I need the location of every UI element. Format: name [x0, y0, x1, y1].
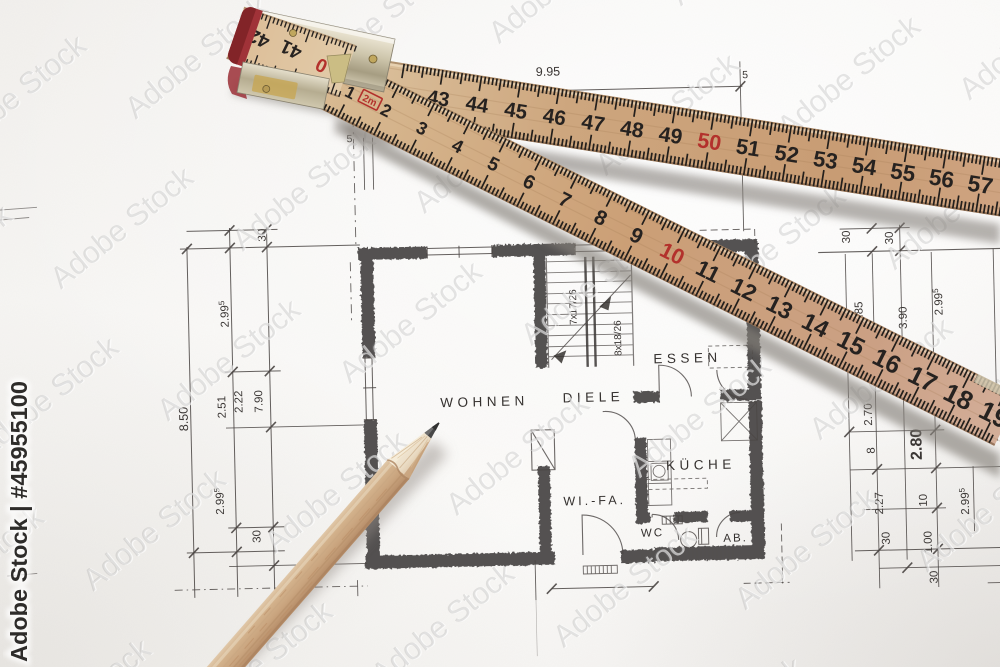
svg-text:57: 57 [966, 170, 995, 200]
svg-text:Adobe Stock | #45955100: Adobe Stock | #45955100 [6, 381, 32, 662]
svg-text:52: 52 [773, 139, 801, 168]
svg-text:KÜCHE: KÜCHE [666, 457, 736, 474]
svg-text:9.95: 9.95 [536, 64, 561, 79]
svg-text:48: 48 [618, 117, 645, 143]
svg-text:30: 30 [881, 532, 893, 545]
svg-text:ESSEN: ESSEN [653, 350, 722, 367]
svg-text:8: 8 [866, 447, 878, 454]
svg-text:30: 30 [841, 230, 853, 243]
svg-text:2.22: 2.22 [233, 390, 246, 413]
svg-text:45: 45 [503, 98, 529, 124]
svg-text:WOHNEN: WOHNEN [440, 393, 529, 410]
svg-text:54: 54 [850, 152, 879, 181]
svg-text:49: 49 [657, 123, 684, 149]
svg-text:AB.: AB. [723, 532, 748, 545]
svg-text:46: 46 [541, 104, 567, 130]
svg-text:55: 55 [889, 158, 918, 187]
svg-text:WI.-FA.: WI.-FA. [563, 493, 626, 508]
svg-text:56: 56 [927, 164, 956, 193]
svg-text:2.51: 2.51 [216, 396, 229, 419]
svg-text:50: 50 [696, 128, 723, 155]
svg-text:44: 44 [464, 93, 490, 118]
svg-text:53: 53 [811, 146, 839, 175]
svg-text:8x18/26: 8x18/26 [613, 320, 625, 356]
svg-text:7.90: 7.90 [253, 390, 266, 413]
svg-text:51: 51 [734, 133, 762, 161]
svg-text:3.90: 3.90 [897, 306, 910, 329]
svg-text:47: 47 [580, 110, 607, 136]
svg-text:10: 10 [918, 494, 930, 507]
